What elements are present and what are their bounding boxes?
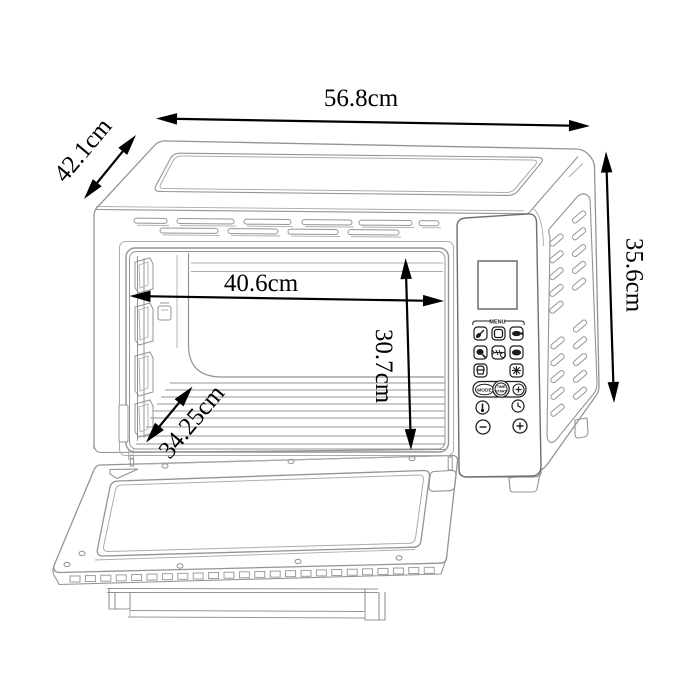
svg-text:42.1cm: 42.1cm bbox=[49, 113, 118, 188]
svg-text:35.6cm: 35.6cm bbox=[621, 238, 648, 313]
svg-text:START: START bbox=[495, 390, 508, 394]
svg-text:TIME: TIME bbox=[497, 385, 506, 389]
svg-text:MENU: MENU bbox=[489, 320, 505, 326]
svg-text:40.6cm: 40.6cm bbox=[224, 270, 299, 297]
svg-text:56.8cm: 56.8cm bbox=[324, 85, 399, 112]
svg-text:MODE: MODE bbox=[477, 388, 492, 394]
svg-text:30.7cm: 30.7cm bbox=[370, 329, 397, 404]
